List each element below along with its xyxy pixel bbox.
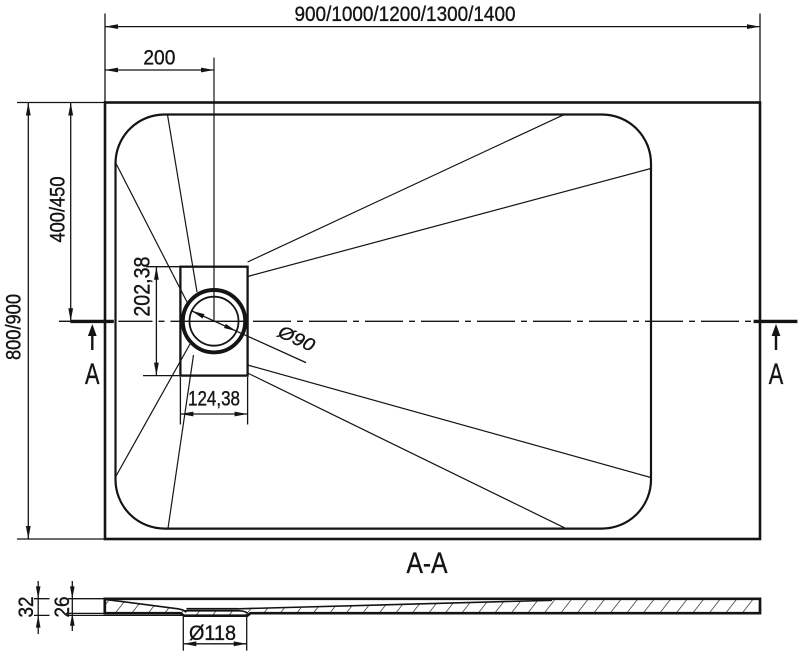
svg-text:A: A <box>769 358 784 391</box>
svg-text:800/900: 800/900 <box>3 294 26 360</box>
svg-text:Ø118: Ø118 <box>189 622 236 645</box>
svg-text:202,38: 202,38 <box>130 257 155 317</box>
svg-text:A-A: A-A <box>407 547 448 580</box>
svg-text:A: A <box>85 358 100 391</box>
svg-text:26: 26 <box>51 597 74 618</box>
svg-text:32: 32 <box>15 597 38 618</box>
svg-text:900/1000/1200/1300/1400: 900/1000/1200/1300/1400 <box>295 3 516 26</box>
svg-text:400/450: 400/450 <box>47 177 70 243</box>
svg-text:124,38: 124,38 <box>188 388 240 411</box>
svg-text:200: 200 <box>143 47 175 70</box>
